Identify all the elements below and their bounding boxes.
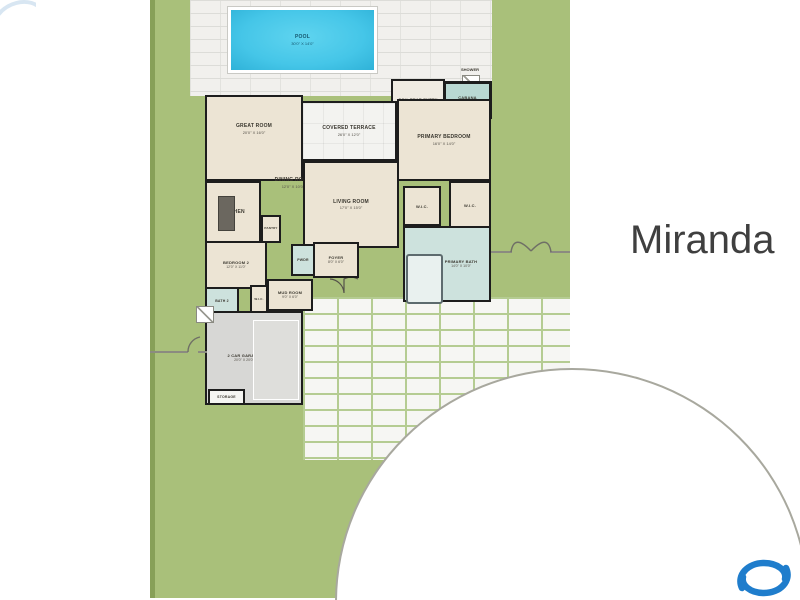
garage-door-panel [253, 320, 299, 400]
room-bedroom-2: BEDROOM 2 12'0" X 11'0" [205, 241, 267, 289]
room-pantry: PANTRY [261, 215, 281, 243]
bathtub [406, 254, 443, 304]
room-pwdr: PWDR [291, 244, 315, 276]
builder-logo-icon [735, 556, 793, 600]
shower-label: SHOWER [461, 67, 479, 72]
pool: POOL 30'0" X 14'0" [228, 7, 377, 73]
driveway-gate-icon [510, 232, 552, 254]
room-primary-bedroom: PRIMARY BEDROOM 16'0" X 14'0" [397, 99, 491, 181]
right-fence-2 [550, 251, 570, 253]
kitchen-island [218, 196, 235, 231]
entry-door-arcs-icon [328, 278, 360, 296]
room-storage: STORAGE [208, 389, 245, 405]
room-living: LIVING ROOM 17'0" X 15'0" [303, 161, 399, 248]
corner-logo-fragment-icon [0, 0, 36, 20]
side-gate-icon [196, 306, 214, 323]
left-gate-icon [186, 335, 202, 353]
room-covered-terrace: COVERED TERRACE 26'0" X 12'0" [301, 101, 397, 161]
room-wic-2: W.I.C. [449, 181, 491, 229]
room-mud-room: MUD ROOM 9'0" X 6'0" [267, 279, 313, 311]
right-fence-1 [491, 251, 512, 253]
pool-dim: 30'0" X 14'0" [291, 41, 314, 46]
room-foyer: FOYER 8'0" X 6'0" [313, 242, 359, 278]
left-fence [150, 351, 188, 353]
plan-title: Miranda [630, 218, 800, 263]
room-wic-1: W.I.C. [403, 186, 441, 226]
floor-plan-canvas: POOL 30'0" X 14'0" SHOWER COV. REAR ENTR… [0, 0, 800, 600]
